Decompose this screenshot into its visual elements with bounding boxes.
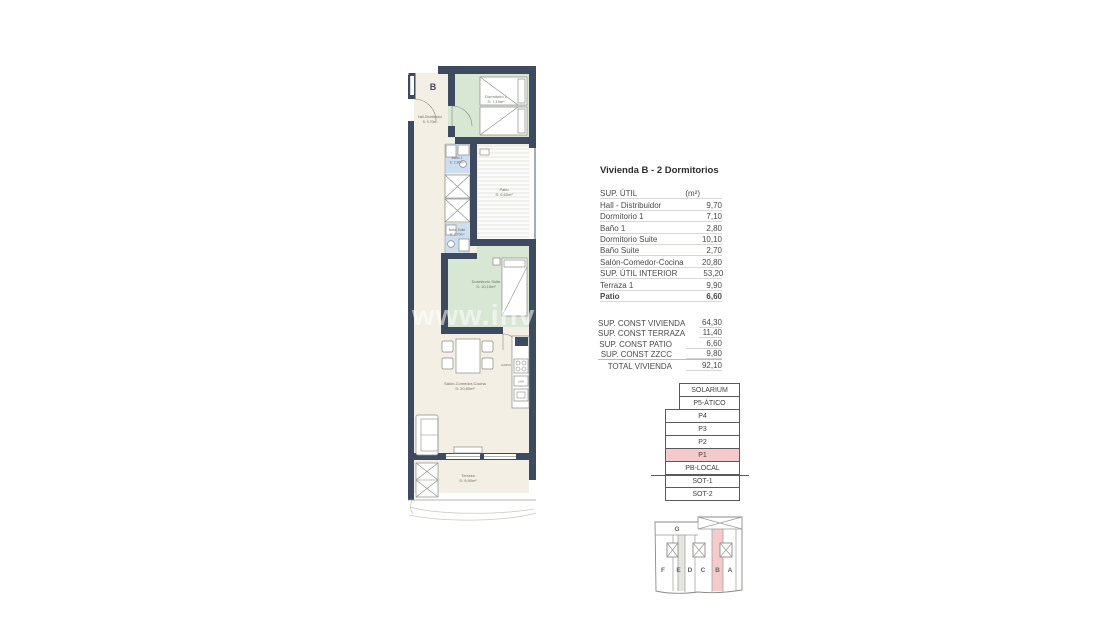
- room-area-terraza: S: 9,90m²: [459, 478, 477, 483]
- level-p5-atico: P5-ÁTICO: [679, 396, 740, 410]
- unit-letter-e: E: [676, 567, 681, 574]
- table-row: SUP. CONST TERRAZA11,40: [598, 328, 722, 339]
- table-row: Baño 12,80: [600, 222, 722, 233]
- room-label-bano1: Baño 1: [452, 156, 463, 160]
- unit-letter-a: A: [728, 567, 733, 574]
- kitchen-label-horno: HORNO: [501, 363, 511, 367]
- table-row-total: TOTAL VIVIENDA92,10: [598, 359, 722, 371]
- level-solarium: SOLARIUM: [679, 383, 740, 397]
- room-label-hall: Hall-Distribuidor: [418, 115, 443, 119]
- room-area-patio: S: 6,60m²: [495, 192, 513, 197]
- level-p2: P2: [665, 435, 740, 449]
- room-area-suite: S: 10,10m²: [476, 284, 496, 289]
- header-unit: (m²): [685, 189, 722, 198]
- room-area-salon: S: 20,80m²: [455, 386, 475, 391]
- table-row: Baño Suite2,70: [600, 245, 722, 256]
- table-row: SUP. CONST VIVIENDA64,30: [598, 317, 722, 328]
- unit-letter-c: C: [701, 567, 706, 574]
- table-row: Dormitorio 17,10: [600, 211, 722, 222]
- sketch-lines: [409, 500, 536, 520]
- room-area-hall: S: 9,70m²: [423, 120, 439, 124]
- unit-b-strip-highlight: [712, 529, 723, 591]
- table-row: SUP. CONST PATIO6,60: [598, 338, 722, 349]
- unit-letter-b: B: [715, 567, 720, 574]
- kitchen-label-lava: LAVA: [518, 380, 525, 384]
- level-sot1: SOT-1: [665, 474, 740, 488]
- stair-cores: [667, 543, 732, 557]
- ground-line: [651, 475, 749, 476]
- sofa: [416, 415, 438, 455]
- unit-letter-d: D: [688, 567, 693, 574]
- building-levels: SOLARIUM P5-ÁTICO P4 P3 P2 P1 PB-LOCAL S…: [650, 384, 750, 501]
- tv-unit: [454, 447, 482, 453]
- ac-unit: [480, 149, 489, 155]
- table-row: Hall - Distribuidor9,70: [600, 199, 722, 210]
- table-row: Terraza 19,90: [600, 279, 722, 290]
- room-label-banosuite: Baño Suite: [449, 228, 466, 232]
- level-pb-local: PB-LOCAL: [665, 461, 740, 475]
- table-row: Salón-Comedor-Cocina20,80: [600, 256, 722, 267]
- terrace-storage: [416, 463, 438, 497]
- unit-letter-f: F: [661, 567, 665, 574]
- unit-letter-g: G: [674, 526, 679, 533]
- level-p3: P3: [665, 422, 740, 436]
- table-row-subtotal: SUP. ÚTIL INTERIOR53,20: [600, 268, 722, 279]
- entry-label: B: [430, 82, 437, 92]
- unit-title: Vivienda B - 2 Dormitorios: [600, 165, 800, 176]
- table-header: SUP. ÚTIL (m²): [600, 188, 722, 199]
- header-label: SUP. ÚTIL: [600, 189, 637, 198]
- sup-util-table: SUP. ÚTIL (m²) Hall - Distribuidor9,70 D…: [600, 188, 722, 302]
- key-plan: G F E D C B A: [648, 514, 744, 600]
- room-area-banosuite: S: 2,70m²: [450, 233, 466, 237]
- sup-const-table: SUP. CONST VIVIENDA64,30 SUP. CONST TERR…: [598, 317, 722, 371]
- shaft-strip: [678, 535, 685, 591]
- table-row: SUP. CONST ZZCC9,80: [598, 349, 722, 360]
- room-area-bano1: S: 2,80m²: [450, 161, 466, 165]
- level-p1-highlighted: P1: [665, 448, 740, 462]
- watermark: www.inves: [412, 300, 570, 333]
- table-row: Dormitorio Suite10,10: [600, 234, 722, 245]
- page: HORNO LAVA B Hall-Distribuidor: [0, 0, 1110, 626]
- table-row: Patio6,60: [600, 291, 722, 302]
- level-p4: P4: [665, 409, 740, 423]
- level-sot2: SOT-2: [665, 487, 740, 501]
- room-area-dorm1: S: 7,10m²: [487, 99, 505, 104]
